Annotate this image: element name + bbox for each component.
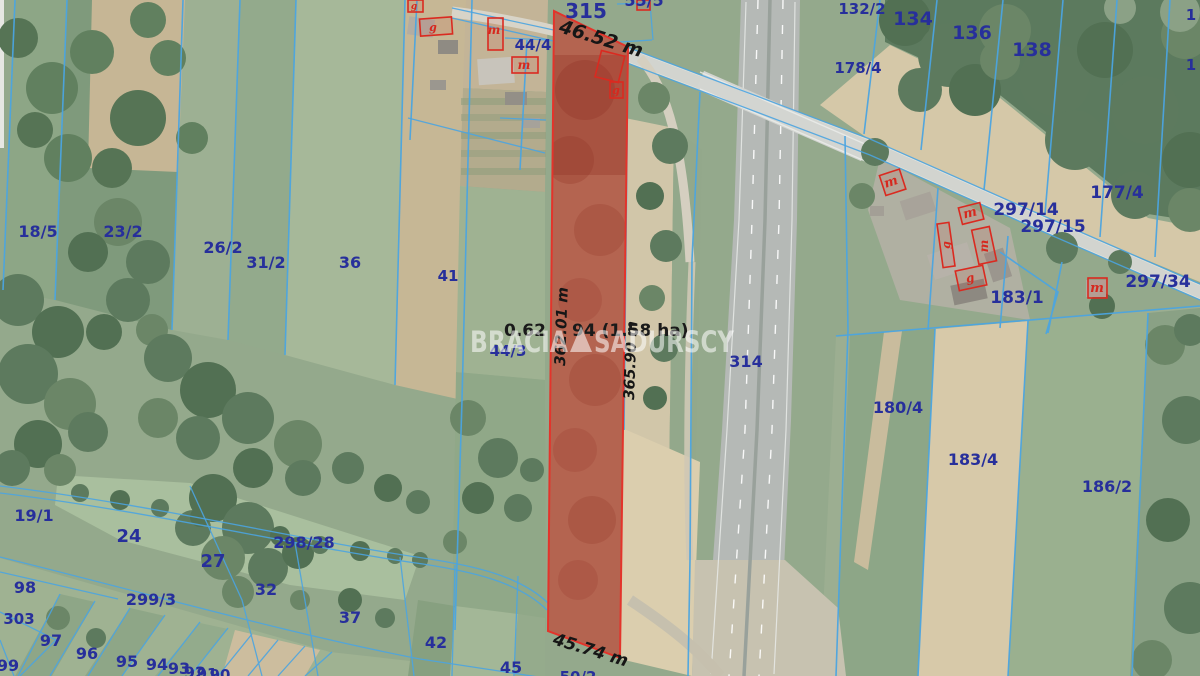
- parcel-label-138: 138: [1012, 39, 1052, 61]
- parcel-label-45: 45: [500, 658, 522, 676]
- parcel-label-132-2: 132/2: [838, 0, 885, 18]
- parcel-label-42: 42: [425, 633, 447, 652]
- parcel-label-298-28: 298/28: [273, 533, 335, 552]
- watermark: BRACIA SADURSCY: [470, 325, 735, 359]
- parcel-label-50-2: 50/2: [560, 668, 597, 676]
- parcel-label-183-1: 183/1: [990, 288, 1044, 308]
- building-mark: g: [612, 84, 620, 97]
- parcel-label-98: 98: [14, 578, 36, 597]
- parcel-label-180-4: 180/4: [873, 398, 923, 417]
- building-mark: m: [488, 23, 501, 37]
- parcel-label-97: 97: [40, 631, 62, 650]
- parcel-label-183-4: 183/4: [948, 450, 998, 469]
- parcel-label-36: 36: [339, 253, 361, 272]
- parcel-label-cut-right-b: 1: [1186, 56, 1196, 74]
- parcel-label-23-2: 23/2: [103, 222, 142, 241]
- parcel-label-178-4: 178/4: [834, 59, 881, 77]
- parcel-label-19-1: 19/1: [14, 506, 53, 525]
- parcel-label-95: 95: [116, 652, 138, 671]
- parcel-label-297-15: 297/15: [1020, 217, 1085, 237]
- parcel-label-31-2: 31/2: [246, 253, 285, 272]
- parcel-label-cut-right-a: 1: [1186, 6, 1196, 24]
- parcel-label-96: 96: [76, 644, 98, 663]
- building-mark: m: [977, 240, 991, 253]
- cadastral-satellite-map: g g m m g m m g m g m 315 55/5 132/2 134…: [0, 0, 1200, 676]
- parcel-label-44-4: 44/4: [515, 36, 552, 54]
- building-mark: g: [940, 241, 953, 249]
- watermark-brand-left: BRACIA: [470, 325, 568, 359]
- parcel-label-18-5: 18/5: [18, 222, 57, 241]
- parcel-label-134: 134: [893, 8, 933, 30]
- parcel-label-299-3: 299/3: [126, 590, 176, 609]
- parcel-label-303: 303: [3, 610, 34, 628]
- map-viewport[interactable]: g g m m g m m g m g m 315 55/5 132/2 134…: [0, 0, 1200, 676]
- parcel-label-314: 314: [729, 352, 762, 371]
- parcel-label-27: 27: [200, 551, 225, 572]
- building-mark: g: [411, 2, 417, 12]
- parcel-label-99: 99: [0, 656, 19, 675]
- parcel-label-32: 32: [255, 580, 277, 599]
- parcel-label-94: 94: [146, 655, 168, 674]
- parcel-label-90: 90: [210, 666, 231, 676]
- parcel-label-24: 24: [116, 526, 141, 547]
- parcel-label-26-2: 26/2: [203, 238, 242, 257]
- parcel-label-136: 136: [952, 22, 992, 44]
- building-mark: m: [1090, 281, 1104, 296]
- watermark-brand-right: SADURSCY: [594, 325, 735, 359]
- parcel-label-297-34: 297/34: [1125, 272, 1191, 292]
- parcel-label-55-5: 55/5: [624, 0, 663, 10]
- parcel-label-37: 37: [339, 608, 361, 627]
- parcel-label-41: 41: [438, 267, 459, 285]
- building-mark: m: [518, 58, 531, 72]
- parcel-label-186-2: 186/2: [1082, 477, 1132, 496]
- parcel-label-177-4: 177/4: [1090, 183, 1144, 203]
- building-mark: g: [429, 21, 437, 34]
